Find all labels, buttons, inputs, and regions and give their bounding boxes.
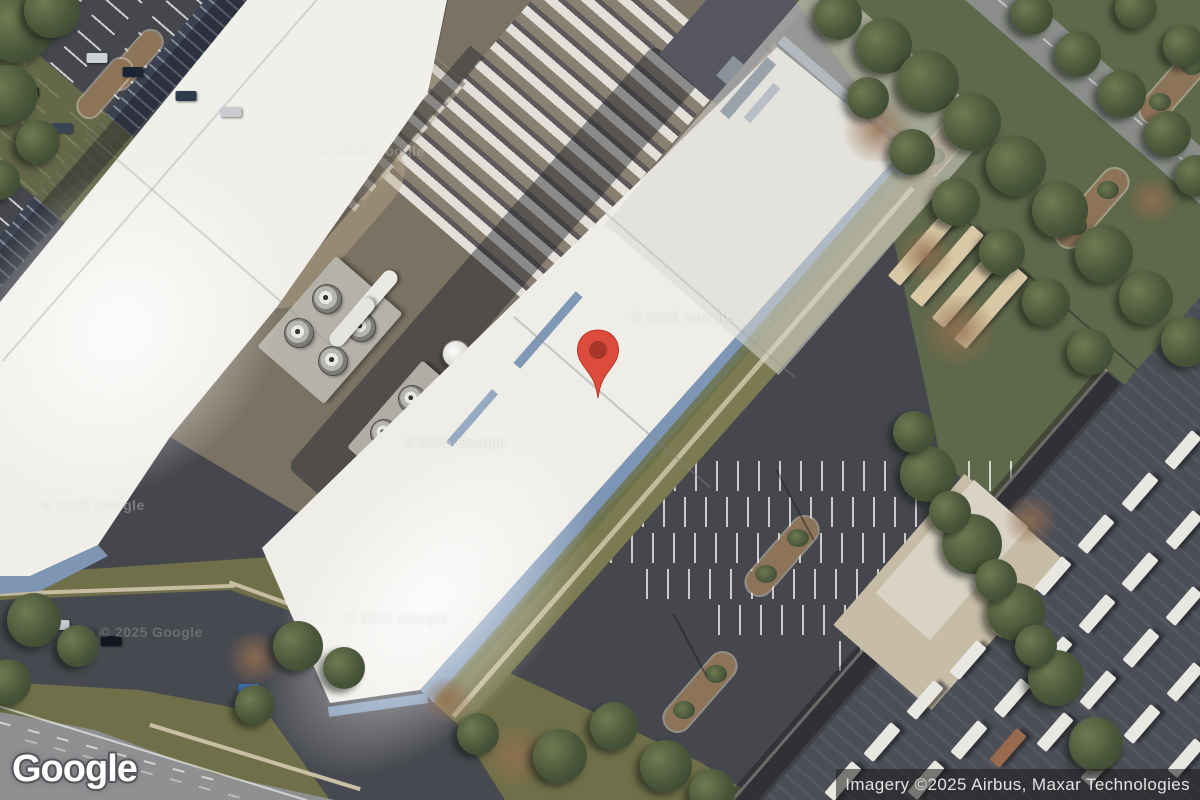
tree [1067,329,1113,375]
tree [932,178,980,226]
map-pin-marker[interactable] [574,328,622,400]
parked-car [221,107,242,117]
pin-inner-dot [589,341,607,359]
imagery-attribution: Imagery ©2025 Airbus, Maxar Technologies [836,769,1200,800]
tree [457,713,499,755]
google-watermark: © 2025 Google [404,434,507,450]
tree [590,702,638,750]
tree [640,740,692,792]
tree [893,411,935,453]
tree [979,229,1025,275]
tree [1145,111,1191,157]
shrub [673,701,695,719]
tree [1163,25,1200,67]
google-watermark: © 2025 Google [631,309,734,325]
tree [7,593,61,647]
tree [323,647,365,689]
tree [1119,271,1173,325]
parked-car [87,53,108,63]
shrub [787,529,809,547]
tree [533,729,587,783]
tree [1015,625,1057,667]
pin-body [578,330,619,398]
tree [943,93,1001,151]
parked-car [176,91,197,101]
dirt-patch [1124,178,1180,223]
tree [1022,278,1070,326]
lamp-post-shadow [673,614,708,677]
tree [889,129,935,175]
dirt-patch [893,229,957,280]
tree [1055,31,1101,77]
tree [929,491,971,533]
shrub [705,665,727,683]
tree [273,621,323,671]
tree [1075,225,1133,283]
google-logo[interactable]: Google [12,748,137,791]
shrub [1149,93,1171,111]
shrub [1097,181,1119,199]
shrub [755,565,777,583]
google-watermark: © 2025 Google [100,624,203,640]
tree [1069,717,1123,771]
parked-car [123,67,144,77]
tree [986,136,1046,196]
google-watermark: © 2025 Google [42,497,145,513]
google-watermark: © 2025 Google [345,610,448,626]
cooling-fan [319,347,347,375]
tree [57,625,99,667]
google-watermark: © 2025 Google [322,143,425,159]
tree [1098,70,1146,118]
tree [235,685,275,725]
tree [16,120,60,164]
tree [975,559,1017,601]
tree [1032,182,1088,238]
satellite-map[interactable]: © 2025 Google© 2025 Google© 2025 Google©… [0,0,1200,800]
dirt-patch [915,296,1001,365]
tree [847,77,889,119]
dirt-patch [1000,496,1060,544]
